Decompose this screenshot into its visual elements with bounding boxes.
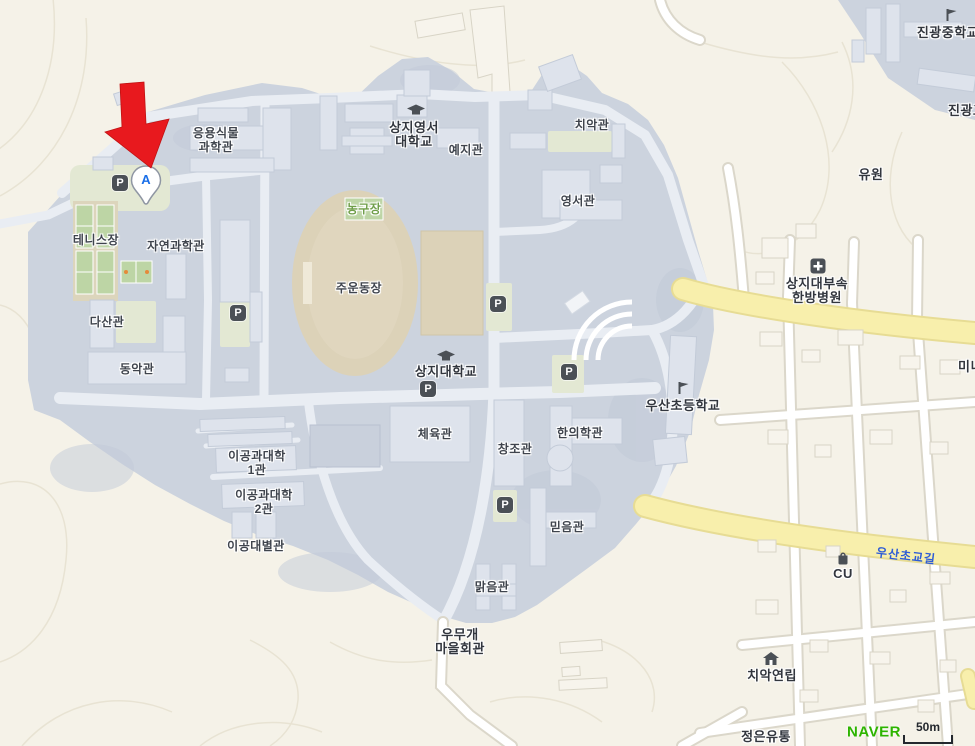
label-dongak-hall[interactable]: 동악관: [120, 362, 155, 376]
house-icon: [763, 652, 779, 666]
label-sangji-yeongseo-univ[interactable]: 상지영서 대학교: [389, 121, 439, 149]
label-mideum-hall[interactable]: 믿음관: [550, 520, 585, 534]
school-flag-icon: [945, 8, 958, 22]
label-cu-store[interactable]: CU: [833, 567, 853, 581]
store-bag-icon: [836, 551, 851, 566]
label-tennis-court[interactable]: 테니스장: [73, 233, 119, 247]
label-jingwang-high-partial[interactable]: 진광고: [948, 104, 975, 118]
parking-icon[interactable]: P: [420, 381, 436, 397]
label-natural-science-hall[interactable]: 자연과학관: [147, 239, 205, 253]
parking-icon[interactable]: P: [112, 175, 128, 191]
parking-icon[interactable]: P: [230, 305, 246, 321]
label-engineering-2[interactable]: 이공과대학 2관: [235, 488, 293, 516]
label-applied-plant-science-hall[interactable]: 응용식물 과학관: [193, 126, 239, 154]
scale-bar: [903, 735, 953, 744]
label-umugae-village-hall[interactable]: 우무개 마을회관: [435, 628, 485, 656]
label-usan-elementary[interactable]: 우산초등학교: [646, 399, 721, 413]
parking-icon[interactable]: P: [497, 497, 513, 513]
label-engineering-annex[interactable]: 이공대별관: [227, 539, 285, 553]
label-jingwang-middle[interactable]: 진광중학교: [917, 26, 975, 40]
label-jeongeun-dist[interactable]: 정은유통: [741, 730, 791, 744]
map-canvas[interactable]: 응용식물 과학관 예지관 치악관 영서관 테니스장 자연과학관 농구장 주운동장…: [0, 0, 975, 746]
label-yeji-hall[interactable]: 예지관: [449, 143, 484, 157]
university-cap-icon: [407, 105, 425, 118]
label-yuwon-area: 유원: [859, 168, 884, 182]
school-flag-icon: [677, 381, 690, 395]
label-engineering-1[interactable]: 이공과대학 1관: [228, 449, 286, 477]
label-sangji-university[interactable]: 상지대학교: [415, 365, 477, 379]
label-chiak-row-houses[interactable]: 치악연립: [747, 669, 797, 683]
scale-text: 50m: [916, 720, 940, 734]
label-mini-partial[interactable]: 미니: [958, 360, 975, 374]
label-chiak-hall[interactable]: 치악관: [575, 118, 610, 132]
parking-icon[interactable]: P: [490, 296, 506, 312]
label-yeongseo-hall[interactable]: 영서관: [561, 194, 596, 208]
label-basketball-court[interactable]: 농구장: [347, 202, 382, 216]
marker-letter: A: [141, 173, 150, 186]
label-korean-medicine-hall[interactable]: 한의학관: [557, 426, 603, 440]
map-scale: 50m: [903, 720, 953, 744]
label-main-stadium[interactable]: 주운동장: [336, 281, 382, 295]
university-cap-icon: [437, 351, 455, 364]
label-gym-hall[interactable]: 체육관: [418, 427, 453, 441]
hospital-cross-icon: [811, 259, 826, 274]
label-malgeum-hall[interactable]: 맑음관: [475, 580, 510, 594]
label-changjo-hall[interactable]: 창조관: [498, 442, 533, 456]
parking-icon[interactable]: P: [561, 364, 577, 380]
highlight-arrow-icon: [100, 78, 180, 173]
label-dasan-hall[interactable]: 다산관: [90, 315, 125, 329]
label-sangji-hospital[interactable]: 상지대부속 한방병원: [786, 277, 848, 305]
naver-logo[interactable]: NAVER: [847, 724, 901, 741]
